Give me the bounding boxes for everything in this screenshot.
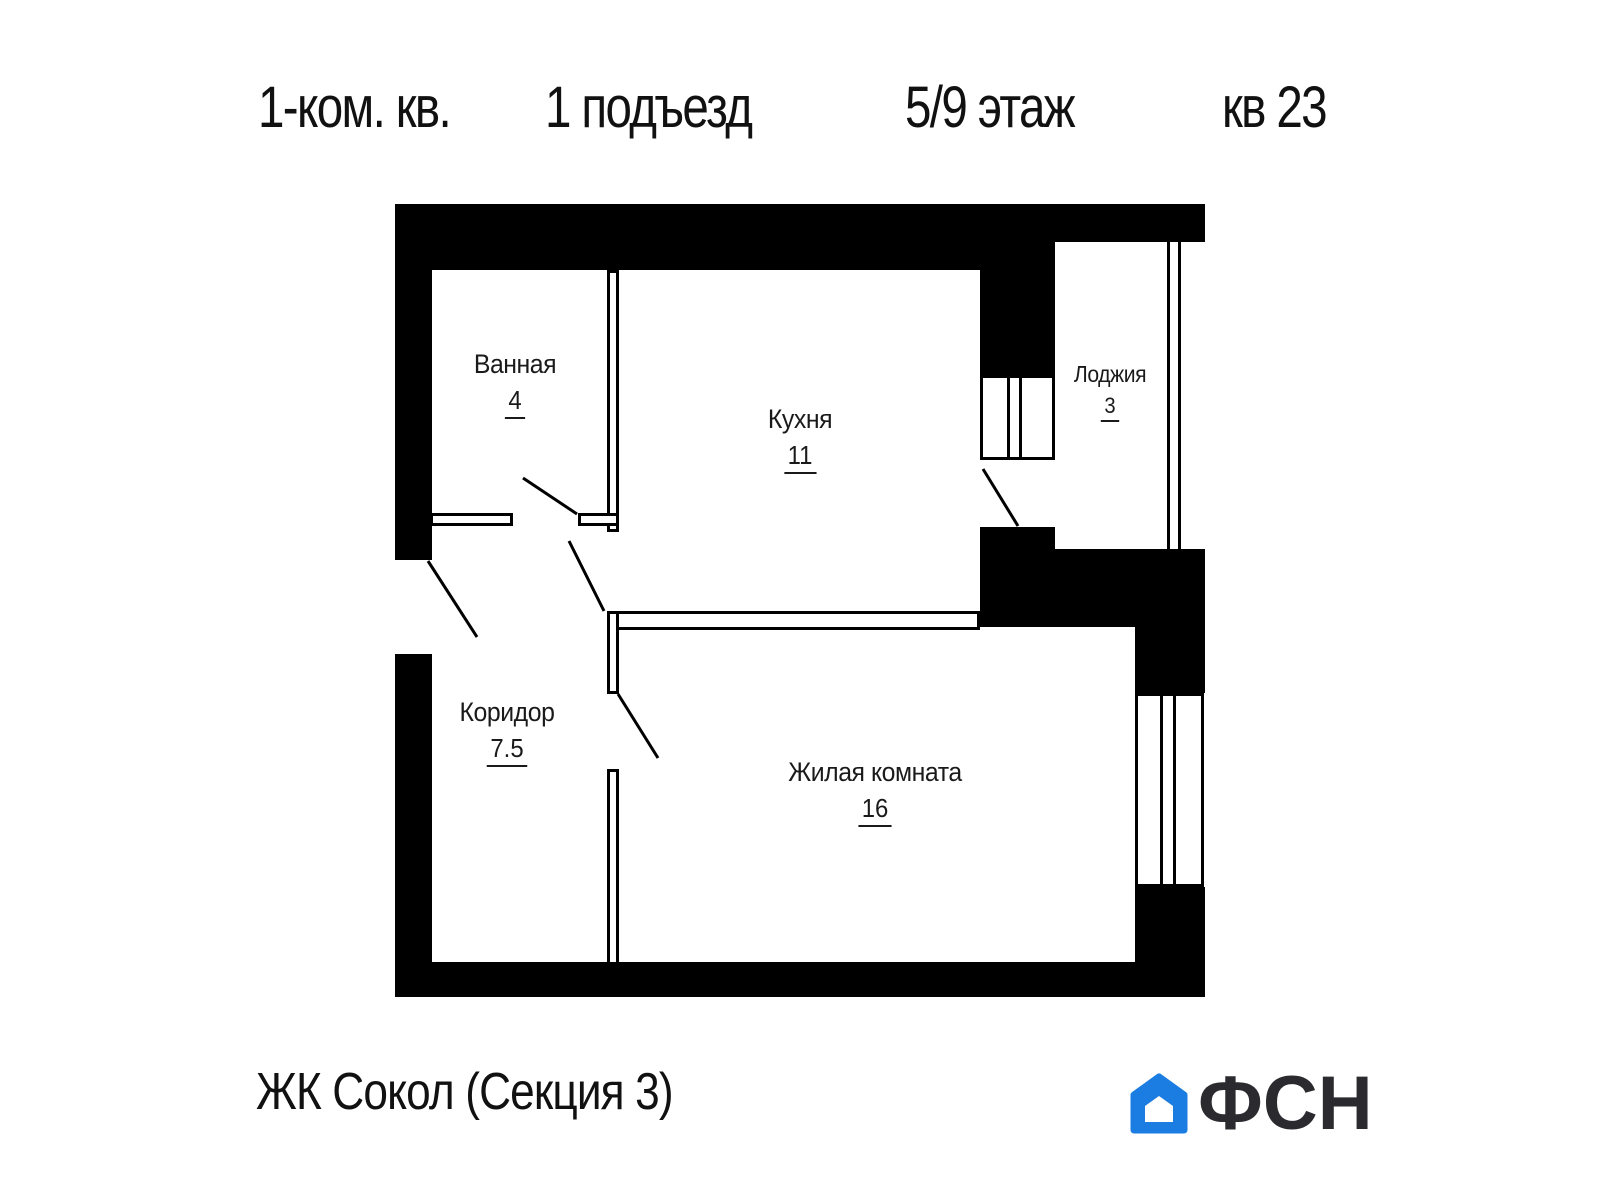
house-icon — [1128, 1072, 1190, 1136]
partition-corridor-living-lower — [607, 769, 619, 965]
room-label-living-room: Жилая комната 16 — [737, 757, 1013, 827]
room-label-corridor: Коридор 7.5 — [369, 697, 645, 767]
header-entrance: 1 подъезд — [545, 74, 751, 141]
wall-balcony-column-lower — [980, 527, 1055, 627]
room-area: 3 — [1101, 393, 1120, 422]
living-room-window — [1135, 693, 1204, 887]
room-area: 4 — [505, 385, 526, 419]
entrance-door-swing — [428, 561, 477, 637]
bathroom-door-swing — [523, 478, 577, 514]
room-area: 7.5 — [487, 733, 528, 767]
room-area: 16 — [858, 793, 892, 827]
living-room-window-mullion — [1173, 696, 1176, 884]
wall-top — [395, 204, 980, 270]
partition-bathroom-door-stub-right — [578, 513, 619, 526]
partition-bathroom-door-stub-left — [430, 513, 513, 526]
developer-logo: ФСН — [1128, 1066, 1373, 1142]
kitchen-door-swing — [569, 541, 604, 611]
door-swing-lines — [0, 0, 1600, 1200]
header-apartment-type: 1-ком. кв. — [258, 74, 450, 141]
wall-loggia-top — [1055, 204, 1205, 242]
wall-loggia-bottom — [1055, 549, 1205, 627]
room-name: Коридор — [369, 697, 645, 728]
wall-right-lower — [1135, 887, 1205, 997]
balcony-door-swing — [983, 469, 1018, 526]
room-name: Жилая комната — [737, 757, 1013, 788]
wall-right-upper — [1135, 627, 1205, 693]
project-name: ЖК Сокол (Секция 3) — [256, 1062, 673, 1122]
room-name: Лоджия — [972, 361, 1248, 388]
header-unit-number: кв 23 — [1222, 74, 1326, 141]
room-label-bathroom: Ванная 4 — [377, 349, 653, 419]
wall-bottom — [395, 962, 1205, 997]
wall-balcony-column-upper — [980, 204, 1055, 375]
room-label-loggia: Лоджия 3 — [972, 361, 1248, 422]
room-label-kitchen: Кухня 11 — [662, 404, 938, 474]
room-name: Кухня — [662, 404, 938, 435]
partition-living-room-top — [607, 611, 980, 630]
floorplan-page: 1-ком. кв. 1 подъезд 5/9 этаж кв 23 — [0, 0, 1600, 1200]
logo-text: ФСН — [1198, 1066, 1373, 1142]
partition-corridor-living-upper — [607, 611, 619, 694]
room-area: 11 — [784, 440, 816, 474]
room-name: Ванная — [377, 349, 653, 380]
header-floor: 5/9 этаж — [905, 74, 1074, 141]
living-room-window-mullion — [1160, 696, 1163, 884]
